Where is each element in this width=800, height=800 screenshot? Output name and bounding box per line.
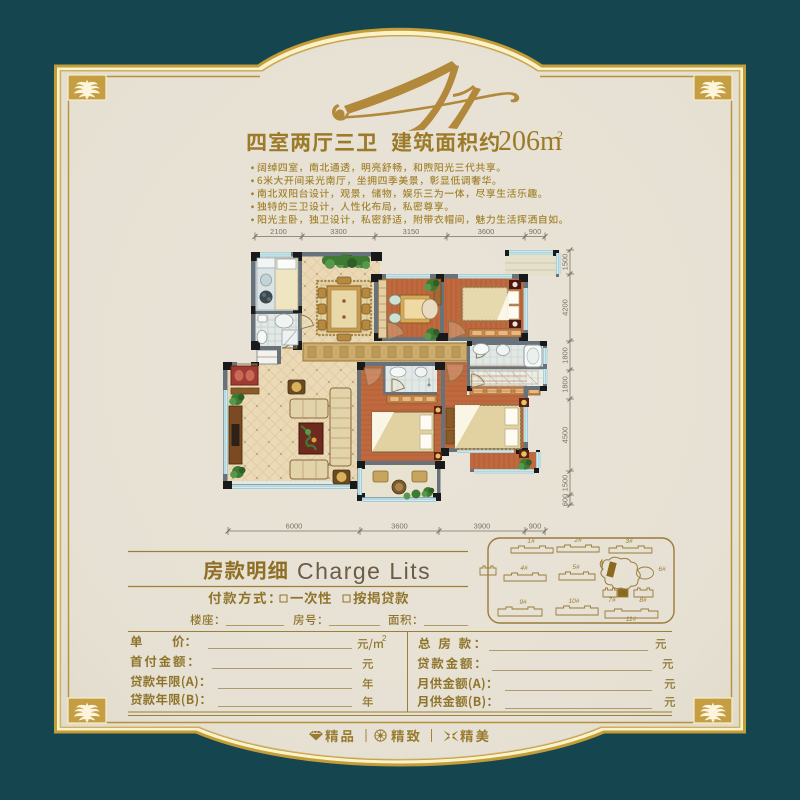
svg-text:4200: 4200 xyxy=(561,299,570,316)
svg-text:3900: 3900 xyxy=(474,522,491,531)
svg-text:2100: 2100 xyxy=(270,227,287,236)
svg-text:3#: 3# xyxy=(625,538,633,545)
svg-text:10#: 10# xyxy=(569,598,580,605)
svg-text:1500: 1500 xyxy=(561,475,570,492)
svg-text:3600: 3600 xyxy=(478,227,495,236)
svg-text:7#: 7# xyxy=(608,597,616,604)
svg-text:5#: 5# xyxy=(572,564,580,571)
svg-text:3300: 3300 xyxy=(330,227,347,236)
svg-text:8#: 8# xyxy=(639,597,647,604)
svg-text:206m: 206m xyxy=(498,126,562,157)
svg-text:900: 900 xyxy=(529,227,542,236)
svg-text:Charge Lits: Charge Lits xyxy=(297,558,431,584)
svg-text:1800: 1800 xyxy=(561,376,570,393)
svg-text:600: 600 xyxy=(561,494,570,507)
svg-text:1#: 1# xyxy=(527,538,535,545)
svg-text:4#: 4# xyxy=(520,565,528,572)
svg-text:4500: 4500 xyxy=(561,427,570,444)
svg-text:9#: 9# xyxy=(519,599,527,606)
svg-text:2#: 2# xyxy=(573,537,582,544)
svg-text:11#: 11# xyxy=(626,616,637,623)
svg-text:6000: 6000 xyxy=(286,522,303,531)
svg-text:2: 2 xyxy=(557,128,563,142)
svg-text:6#: 6# xyxy=(658,566,666,573)
svg-text:3600: 3600 xyxy=(391,522,408,531)
svg-text:900: 900 xyxy=(529,522,542,531)
svg-text:3150: 3150 xyxy=(403,227,420,236)
svg-text:1500: 1500 xyxy=(561,254,570,271)
svg-text:1800: 1800 xyxy=(561,347,570,364)
svg-text:2: 2 xyxy=(382,634,387,643)
